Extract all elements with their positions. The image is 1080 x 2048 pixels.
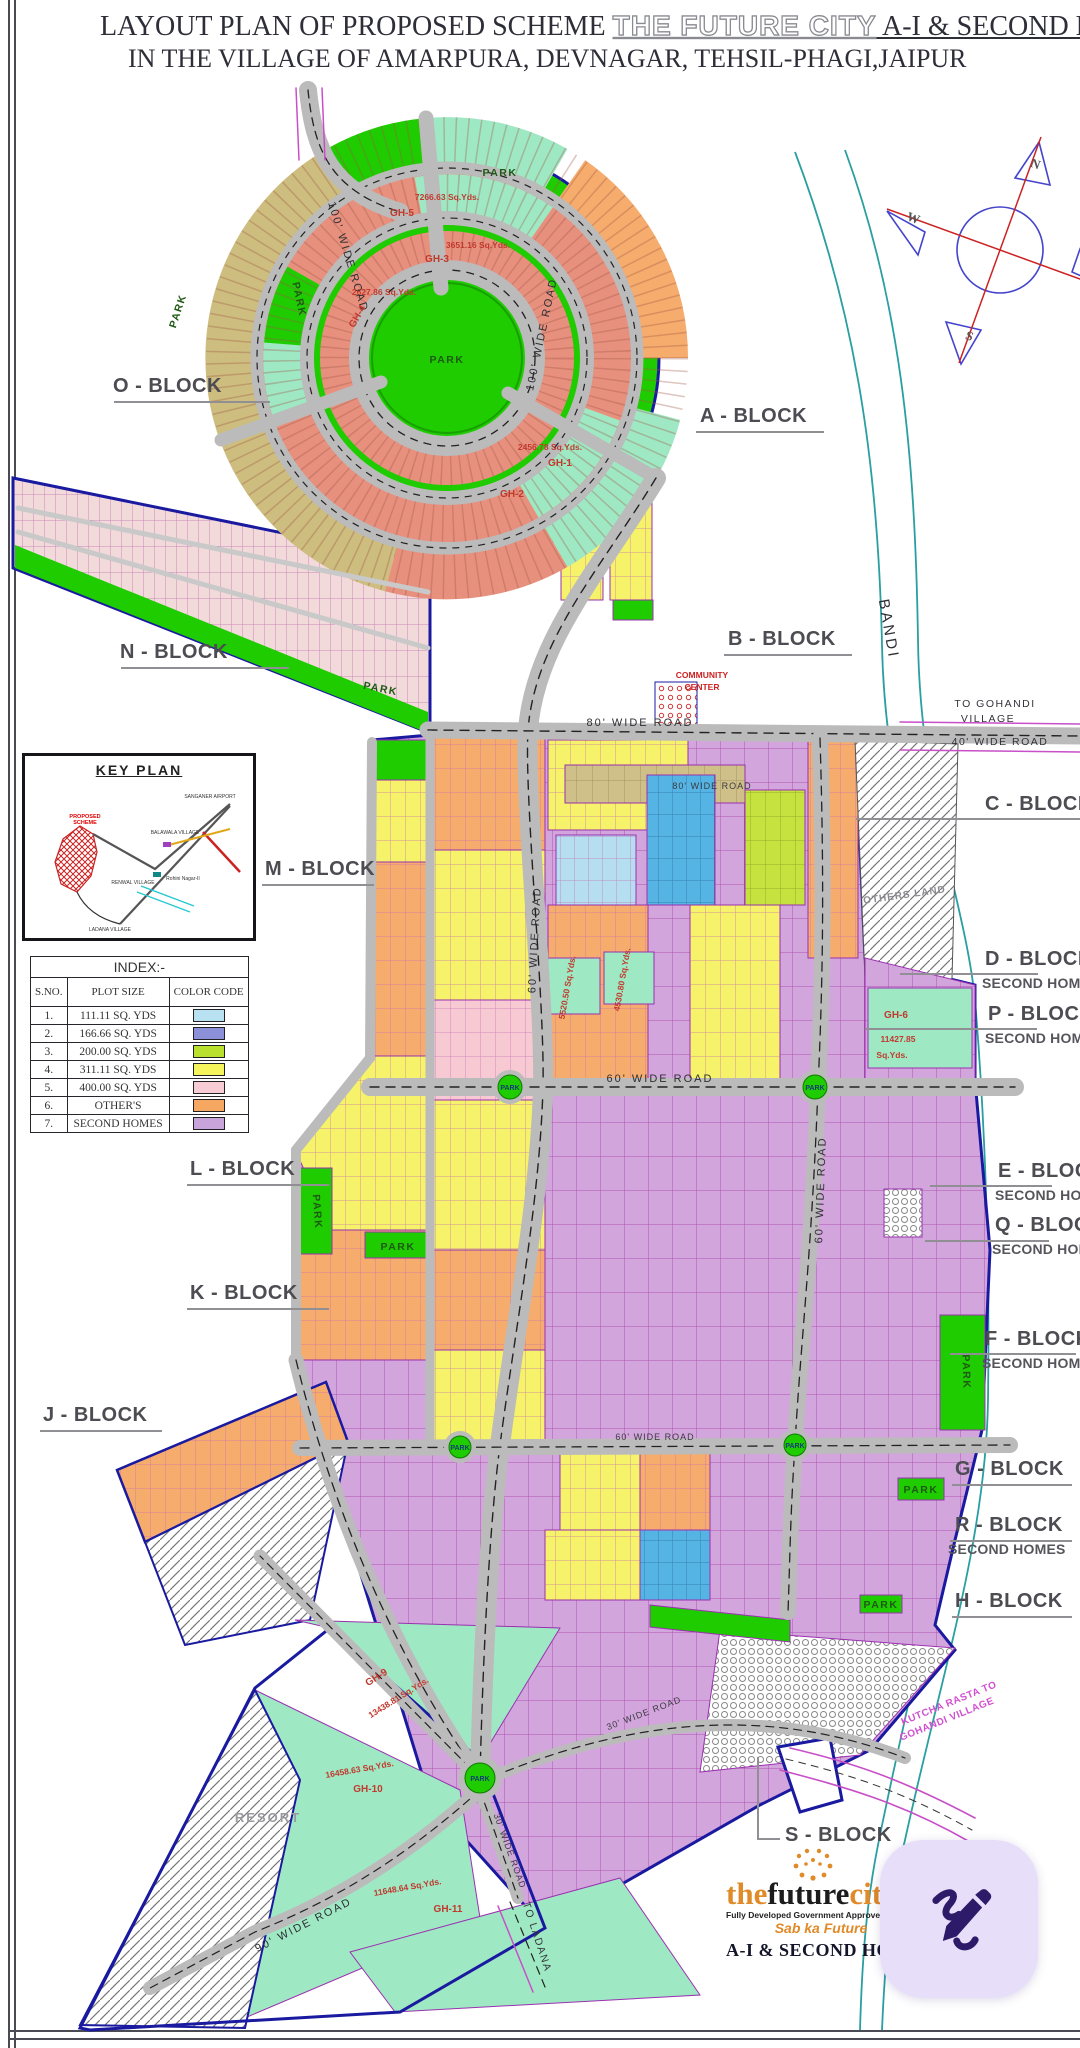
svg-text:GH-2: GH-2 <box>500 489 524 500</box>
park-label: PARK <box>864 1599 899 1611</box>
block-label-j: J - BLOCK <box>43 1404 148 1427</box>
block-label-e: E - BLOCK <box>998 1160 1080 1183</box>
zone-honey-eq <box>884 1189 922 1237</box>
block-sublabel-e: SECOND HOMES <box>995 1187 1080 1203</box>
road-label-60: 60' WIDE ROAD <box>615 1432 694 1442</box>
index-row: 4.311.11 SQ. YDS <box>31 1061 249 1079</box>
block-label-h: H - BLOCK <box>955 1590 1063 1613</box>
road-label-80: 80' WIDE ROAD <box>587 717 694 729</box>
block-sublabel-f: SECOND HOMES <box>982 1355 1080 1371</box>
block-label-d: D - BLOCK <box>985 948 1080 971</box>
roundabout: PARK <box>493 1070 527 1104</box>
park-label: PARK <box>310 1194 324 1230</box>
index-row: 6.OTHER'S <box>31 1097 249 1115</box>
svg-text:GH-11: GH-11 <box>434 1904 463 1915</box>
park-label: PARK <box>430 354 465 366</box>
svg-text:2456.78 Sq.Yds.: 2456.78 Sq.Yds. <box>518 442 582 452</box>
svg-text:PARK: PARK <box>785 1443 804 1450</box>
block-label-f: F - BLOCK <box>985 1328 1080 1351</box>
svg-text:PARK: PARK <box>805 1085 824 1092</box>
svg-text:RENWAL VILLAGE: RENWAL VILLAGE <box>111 880 155 886</box>
zone-c-yellow2 <box>690 905 780 1080</box>
svg-text:2627.86 Sq.Yds.: 2627.86 Sq.Yds. <box>352 287 416 297</box>
roundabout: PARK <box>798 1070 832 1104</box>
s-block-leader <box>750 1755 790 1850</box>
to-gohandi-label: TO GOHANDI <box>954 698 1035 710</box>
resort-label: RESORT <box>235 1810 301 1825</box>
index-row: 5.400.00 SQ. YDS <box>31 1079 249 1097</box>
road-label-80: 80' WIDE ROAD <box>672 781 751 791</box>
logo-sunburst-icon <box>790 1848 836 1882</box>
index-header-sno: S.NO. <box>31 978 68 1007</box>
zone-c-ygreen <box>745 790 805 905</box>
block-sublabel-r: SECOND HOMES <box>948 1541 1066 1557</box>
color-swatch <box>193 1081 225 1094</box>
block-sublabel-q: SECOND HOMES <box>992 1241 1080 1257</box>
block-label-p: P - BLOCK <box>988 1003 1080 1026</box>
community-center-label: COMMUNITY <box>676 670 729 680</box>
index-row: 3.200.00 SQ. YDS <box>31 1043 249 1061</box>
park-label: PARK <box>167 293 189 330</box>
block-label-r: R - BLOCK <box>955 1514 1063 1537</box>
block-label-n: N - BLOCK <box>120 641 228 664</box>
svg-text:GH-3: GH-3 <box>425 254 449 265</box>
svg-text:11427.85: 11427.85 <box>881 1034 916 1044</box>
park-label: PARK <box>959 1354 972 1389</box>
roundabout: PARK <box>779 1429 811 1461</box>
svg-text:Sq.Yds.: Sq.Yds. <box>876 1050 907 1060</box>
color-swatch <box>193 1063 225 1076</box>
block-label-c: C - BLOCK <box>985 793 1080 816</box>
roundabout: PARK <box>444 1431 476 1463</box>
zone-strip-ye3 <box>430 1350 545 1440</box>
color-swatch <box>193 1009 225 1022</box>
index-header-size: PLOT SIZE <box>67 978 169 1007</box>
index-row: 7.SECOND HOMES <box>31 1115 249 1133</box>
svg-text:SCHEME: SCHEME <box>73 820 97 826</box>
to-gohandi-label2: VILLAGE <box>961 713 1015 725</box>
svg-text:Rohini Nagar-II: Rohini Nagar-II <box>166 876 200 882</box>
layout-plan-sheet: { "title": { "line1_prefix": "LAYOUT PLA… <box>0 0 1080 2048</box>
key-plan-title: KEY PLAN <box>25 762 253 778</box>
park-label: PARK <box>904 1484 939 1496</box>
river-label: BANDI <box>875 598 902 661</box>
index-legend: INDEX:- S.NO. PLOT SIZE COLOR CODE 1.111… <box>30 956 249 1133</box>
svg-text:PARK: PARK <box>500 1085 519 1092</box>
park-label: PARK <box>483 167 518 179</box>
plan-title: LAYOUT PLAN OF PROPOSED SCHEME THE FUTUR… <box>100 10 1080 43</box>
title-prefix: LAYOUT PLAN OF PROPOSED SCHEME <box>100 11 613 42</box>
block-sublabel-p: SECOND HOME <box>985 1030 1080 1046</box>
title-brand: THE FUTURE CITY <box>613 10 877 41</box>
block-label-o: O - BLOCK <box>113 375 222 398</box>
zone-bot-ye <box>560 1450 640 1530</box>
svg-text:7266.63 Sq.Yds.: 7266.63 Sq.Yds. <box>415 192 479 202</box>
park-label: PARK <box>381 1241 416 1253</box>
key-plan: KEY PLAN PROPOSED SCHEME SANGANER AIRPOR… <box>22 753 256 941</box>
zone-b-park <box>613 600 653 620</box>
index-header-color: COLOR CODE <box>169 978 248 1007</box>
zone-bot-bl <box>640 1530 710 1600</box>
block-label-k: K - BLOCK <box>190 1282 298 1305</box>
zone-bot-or <box>640 1450 710 1530</box>
road-label-60: 60' WIDE ROAD <box>607 1073 714 1085</box>
svg-text:PARK: PARK <box>450 1445 469 1452</box>
color-swatch <box>193 1099 225 1112</box>
index-row: 1.111.11 SQ. YDS <box>31 1007 249 1025</box>
svg-text:GH-1: GH-1 <box>548 458 572 469</box>
block-label-m: M - BLOCK <box>265 858 375 881</box>
key-plan-drawing: PROPOSED SCHEME SANGANER AIRPORT BALAWAL… <box>25 784 247 934</box>
svg-text:3651.16 Sq.Yds.: 3651.16 Sq.Yds. <box>446 240 510 250</box>
block-label-s: S - BLOCK <box>785 1824 892 1847</box>
block-label-l: L - BLOCK <box>190 1158 295 1181</box>
block-label-a: A - BLOCK <box>700 405 807 428</box>
edit-fab-button[interactable] <box>880 1840 1038 1998</box>
svg-text:GH-10: GH-10 <box>353 1784 383 1795</box>
svg-text:LADANA VILLAGE: LADANA VILLAGE <box>89 927 132 933</box>
block-label-q: Q - BLOCK <box>995 1214 1080 1237</box>
index-title: INDEX:- <box>31 957 249 978</box>
title-suffix: A-I & SECOND HOMES <box>877 11 1080 42</box>
roundabout: PARK <box>458 1756 502 1800</box>
compass-rose: N E S W <box>887 137 1080 364</box>
color-swatch <box>193 1027 225 1040</box>
svg-text:SANGANER AIRPORT: SANGANER AIRPORT <box>184 794 235 800</box>
svg-text:PARK: PARK <box>470 1776 489 1783</box>
block-sublabel-d: SECOND HOMES <box>982 975 1080 991</box>
color-swatch <box>193 1045 225 1058</box>
zone-c-blue <box>647 775 715 905</box>
svg-text:GH-6: GH-6 <box>884 1010 908 1021</box>
community-center-label2: CENTER <box>685 682 720 692</box>
scribble-pen-icon <box>922 1882 996 1956</box>
zone-bot-ye2 <box>545 1530 640 1600</box>
zone-m2 <box>372 862 430 1056</box>
block-label-b: B - BLOCK <box>728 628 836 651</box>
block-label-g: G - BLOCK <box>955 1458 1064 1481</box>
road-label-40: 40' WIDE ROAD <box>952 736 1049 748</box>
zone-m-park <box>372 740 430 780</box>
color-swatch <box>193 1117 225 1130</box>
index-row: 2.166.66 SQ. YDS <box>31 1025 249 1043</box>
svg-text:GH-5: GH-5 <box>390 208 414 219</box>
svg-text:BALAWALA VILLAGE: BALAWALA VILLAGE <box>151 830 200 836</box>
